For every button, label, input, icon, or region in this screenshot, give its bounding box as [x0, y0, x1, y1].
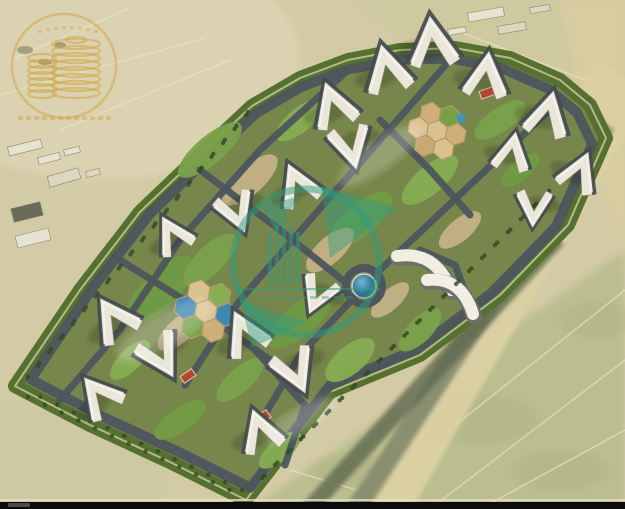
tree-dot — [93, 426, 97, 430]
gold-logo-text-mark — [34, 116, 39, 120]
teal-logo-bar — [268, 232, 272, 286]
tree-dot — [415, 321, 419, 325]
bottom-bar-notch — [8, 503, 30, 507]
tree-dot — [189, 465, 193, 469]
gold-logo-arc-text — [54, 27, 58, 30]
gold-logo-arc-text — [70, 26, 74, 29]
tree-dot — [165, 207, 169, 211]
teal-logo-text-mark — [298, 296, 305, 299]
tree-dot — [26, 375, 30, 379]
tree-dot — [519, 217, 523, 221]
gold-logo-arc-text — [46, 28, 50, 31]
tree-dot — [43, 403, 47, 407]
tree-dot — [350, 385, 354, 389]
tree-dot — [194, 472, 198, 476]
scrub-mark — [17, 46, 33, 54]
tree-dot — [428, 308, 432, 312]
tree-dot — [61, 333, 65, 337]
teal-logo-text-mark — [250, 296, 257, 299]
tree-dot — [72, 319, 76, 323]
small-pond — [457, 114, 466, 123]
tree-dot — [38, 395, 42, 399]
tree-dot — [160, 457, 164, 461]
tree-dot — [246, 110, 250, 114]
tree-dot — [173, 457, 177, 461]
tree-dot — [130, 249, 134, 253]
tree-dot — [506, 230, 510, 234]
tree-dot — [363, 372, 367, 376]
tree-dot — [188, 180, 192, 184]
tree-dot — [176, 193, 180, 197]
tree-dot — [122, 433, 126, 437]
tree-dot — [234, 124, 238, 128]
gold-logo-arc-text — [94, 30, 98, 33]
tree-dot — [337, 398, 341, 402]
gold-logo-arc-text — [86, 28, 90, 31]
tree-dot — [153, 221, 157, 225]
tree-dot — [59, 410, 63, 414]
teal-logo-text-mark — [274, 296, 281, 299]
gold-logo-text-mark — [26, 116, 31, 120]
teal-logo-text-mark — [358, 296, 365, 299]
gold-logo-text-mark — [82, 116, 87, 120]
tree-dot — [273, 463, 277, 467]
tree-dot — [118, 263, 122, 267]
tree-dot — [199, 166, 203, 170]
tree-dot — [454, 282, 458, 286]
gold-logo-text-mark — [42, 116, 47, 120]
gold-logo-text-mark — [58, 116, 63, 120]
gold-logo-arc-text — [62, 26, 66, 29]
tree-dot — [402, 333, 406, 337]
tree-dot — [376, 359, 380, 363]
gold-logo-text-mark — [90, 116, 95, 120]
tree-dot — [156, 449, 160, 453]
tree-dot — [223, 138, 227, 142]
tree-dot — [139, 441, 143, 445]
teal-logo-text-mark — [262, 296, 269, 299]
tree-dot — [441, 295, 445, 299]
gold-logo-arc-text — [78, 27, 82, 30]
teal-logo-bar — [296, 232, 300, 286]
teal-logo-bar — [282, 220, 286, 286]
tree-dot — [177, 465, 181, 469]
gold-logo-text-mark — [18, 116, 23, 120]
gold-logo-text-mark — [74, 116, 79, 120]
teal-logo-text-mark — [346, 296, 353, 299]
teal-logo-text-mark — [322, 296, 329, 299]
tree-dot — [26, 395, 30, 399]
tree-dot — [105, 426, 109, 430]
teal-logo-text-mark — [310, 296, 317, 299]
gold-logo-text-mark — [106, 116, 111, 120]
teal-logo-bar — [275, 226, 279, 286]
bottom-black-strip — [0, 502, 625, 509]
tree-dot — [110, 434, 114, 438]
bottom-light-line — [0, 499, 625, 501]
gold-logo-text-mark — [98, 116, 103, 120]
tree-dot — [240, 488, 244, 492]
tree-dot — [211, 480, 215, 484]
teal-logo-text-mark — [286, 296, 293, 299]
teal-logo-text-mark — [334, 296, 341, 299]
tree-dot — [389, 346, 393, 350]
tree-dot — [127, 441, 131, 445]
tree-dot — [107, 277, 111, 281]
tree-dot — [227, 488, 231, 492]
tree-dot — [49, 347, 53, 351]
tree-dot — [260, 476, 264, 480]
tree-dot — [206, 472, 210, 476]
tree-dot — [72, 410, 76, 414]
tree-dot — [299, 437, 303, 441]
teal-logo-bar — [289, 226, 293, 286]
tree-dot — [223, 480, 227, 484]
gold-logo-text-mark — [50, 116, 55, 120]
tree-dot — [211, 152, 215, 156]
scene-svg — [0, 0, 625, 509]
tree-dot — [84, 305, 88, 309]
tree-dot — [286, 450, 290, 454]
tree-dot — [480, 256, 484, 260]
gold-logo-text-mark — [66, 116, 71, 120]
gold-logo-arc-text — [38, 30, 42, 33]
bottom-black-bar — [0, 499, 625, 509]
tree-dot — [37, 361, 41, 365]
tree-dot — [143, 449, 147, 453]
tree-dot — [55, 402, 59, 406]
tree-dot — [142, 235, 146, 239]
tree-dot — [493, 243, 497, 247]
tree-dot — [467, 269, 471, 273]
aerial-render-image — [0, 0, 625, 509]
